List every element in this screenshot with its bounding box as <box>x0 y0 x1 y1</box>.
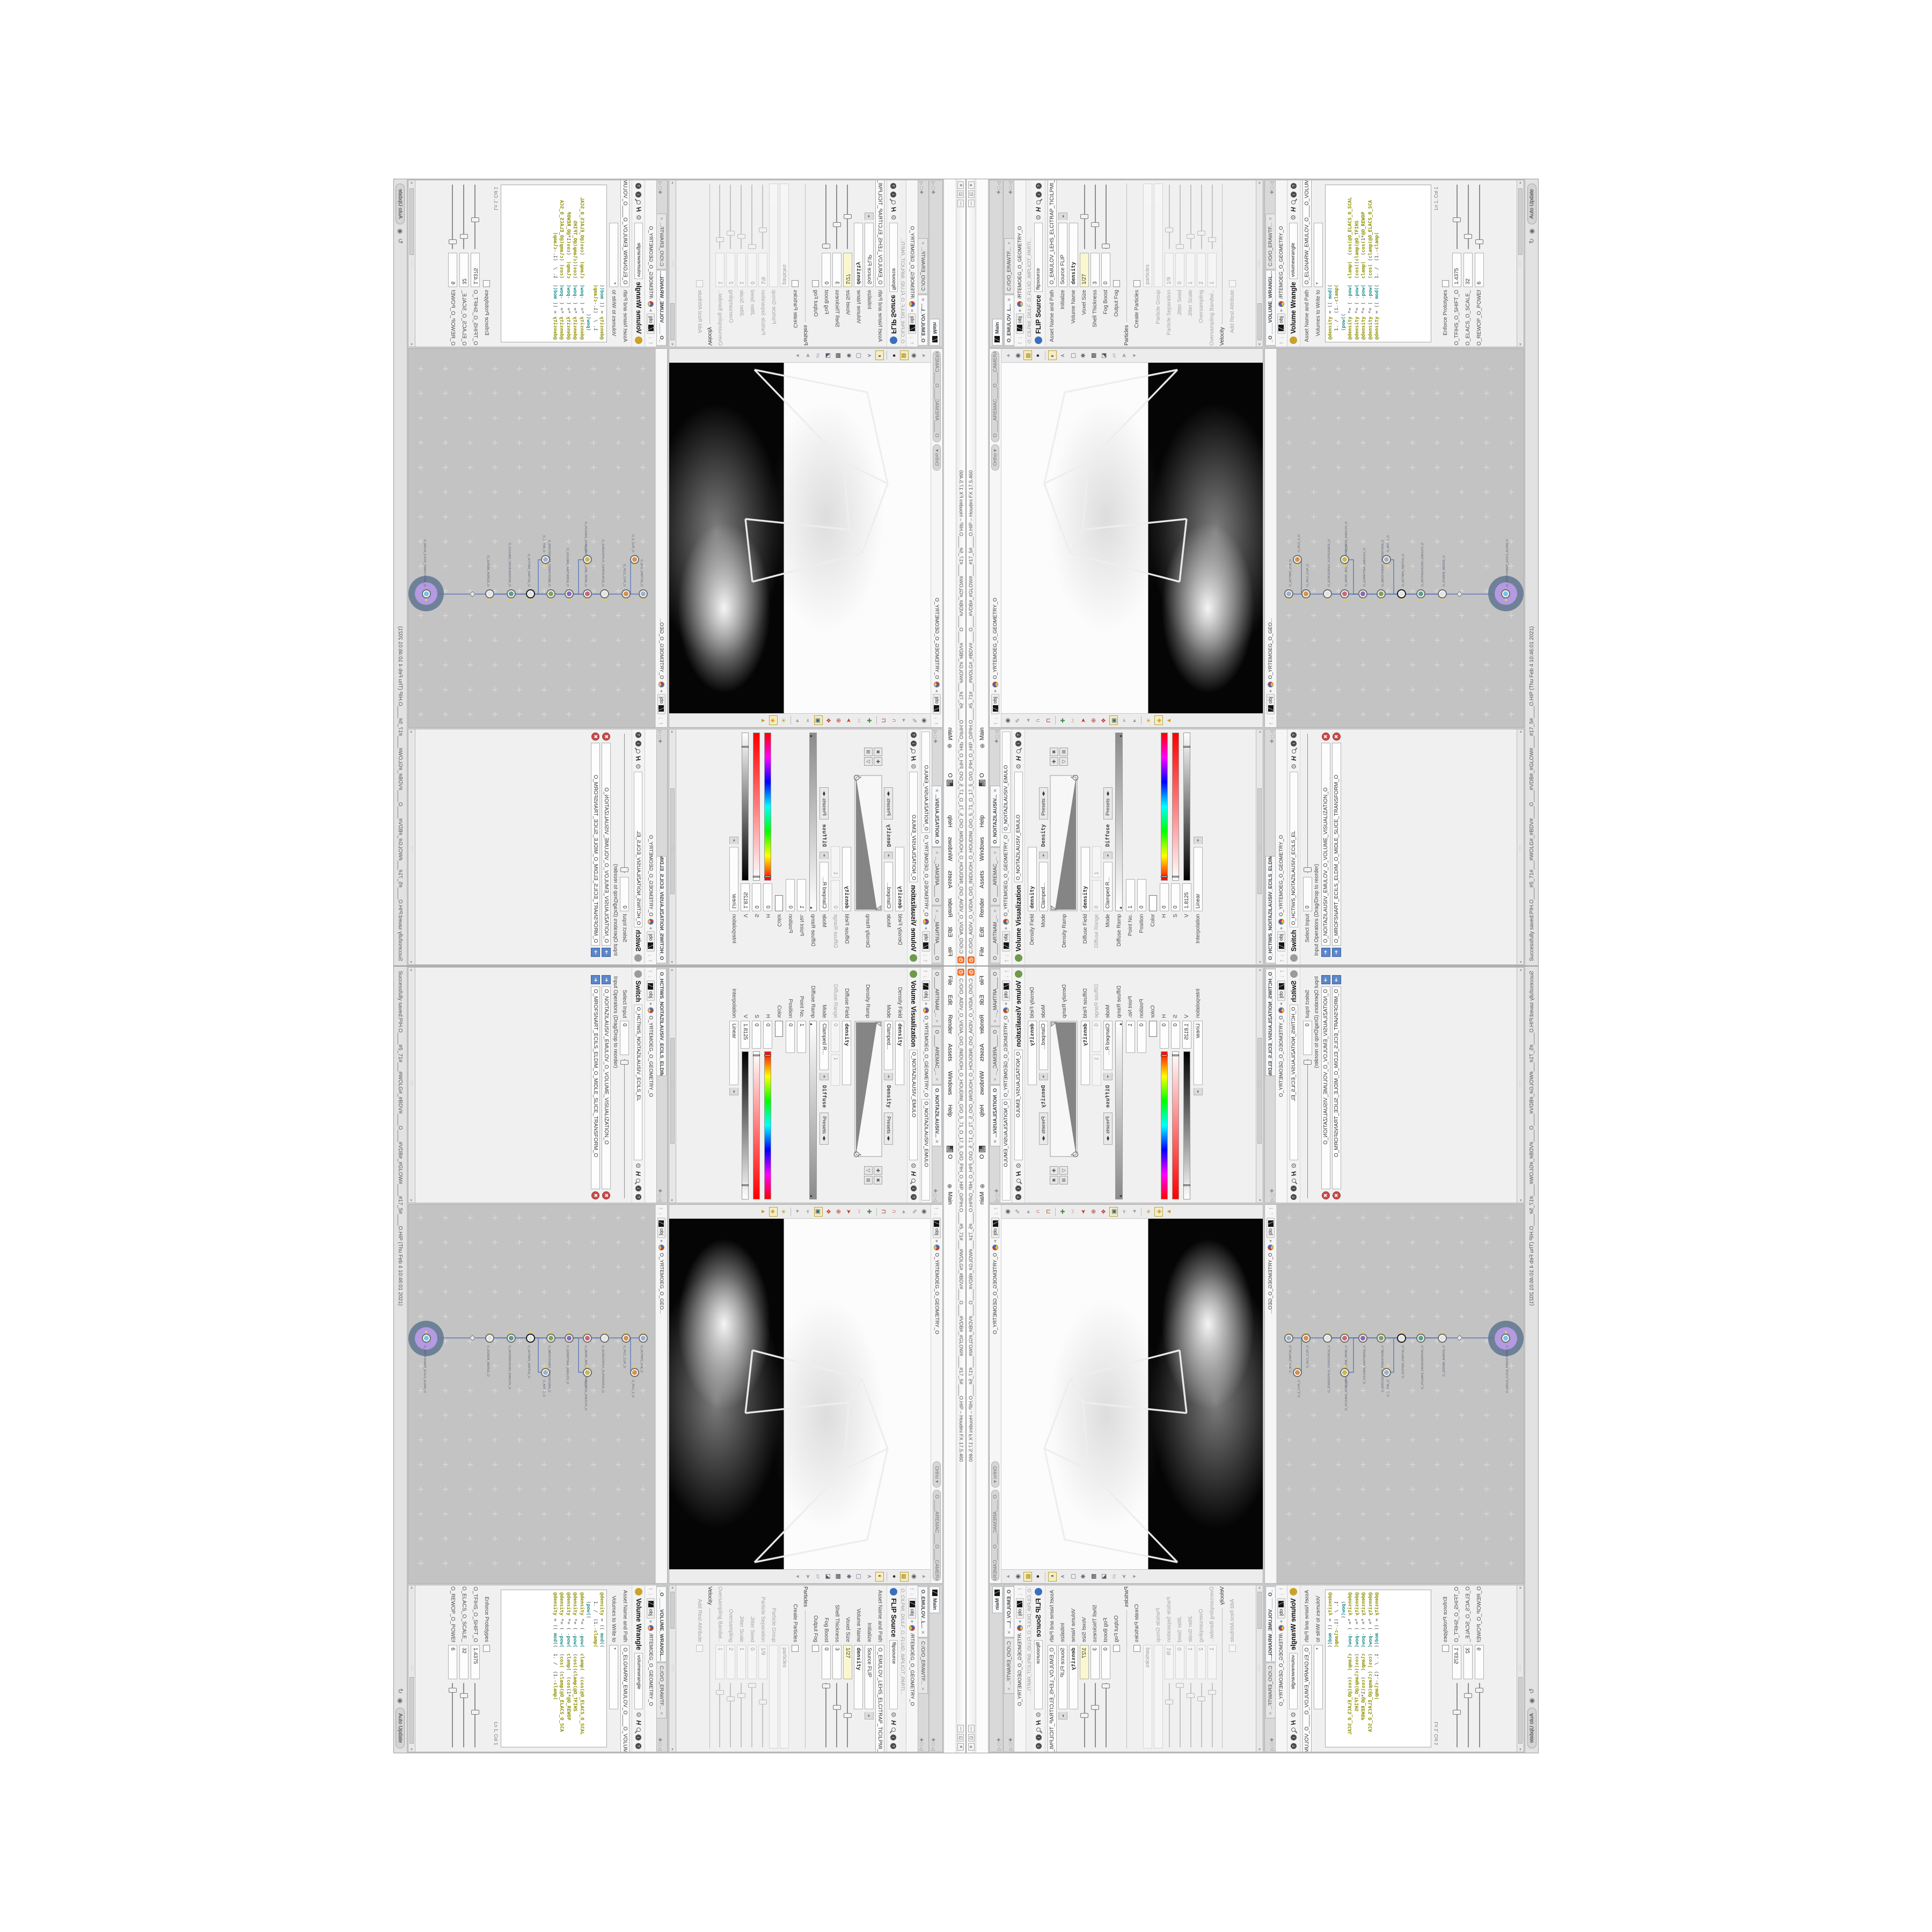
param-field[interactable]: density <box>1028 847 1037 911</box>
param-slider[interactable] <box>1304 733 1312 874</box>
wire-box-icon[interactable]: ▢ <box>1069 351 1077 361</box>
reorder-arrow-button[interactable]: ➔ <box>1332 948 1341 957</box>
view-tool-icon[interactable]: ◉ <box>1003 716 1012 726</box>
menu-assets[interactable]: Assets <box>978 866 986 893</box>
scene-viewport-pane: ↑ ↓ obj ▸ O_YRTEMOEG_O_GEOMETRY_O Ortho … <box>989 348 1263 728</box>
wrangle-node-icon <box>1290 336 1297 344</box>
network-node-label: O_EZIRETSAR_EMULOV_O <box>1363 548 1366 587</box>
window-titlebar: C:/O/O_AIDIV_O_VIDIA_O/O_INIDUOH_O_HOUDI… <box>967 179 976 965</box>
param-checkbox[interactable] <box>1229 280 1236 287</box>
param-slider[interactable] <box>1208 184 1216 250</box>
param-slider[interactable] <box>1176 184 1184 250</box>
crumb-arrow-icon: ▸ <box>1268 690 1274 692</box>
crumb-arrow-icon: ▸ <box>1278 927 1284 930</box>
ramp-buttons: ✚✖▽⊞ <box>1050 748 1079 766</box>
menu-windows[interactable]: Windows <box>978 832 986 866</box>
crumb-path[interactable]: O_YRTEMOEG_O_GEOMETRY_O <box>992 598 998 679</box>
cook-mode-selector[interactable]: Auto Update <box>1527 184 1536 224</box>
houdini-help-icon[interactable]: H <box>1290 207 1297 212</box>
pane-control-icon[interactable]: □ <box>994 735 1000 738</box>
param-label: Voxel Size <box>1081 290 1087 346</box>
network-node[interactable] <box>1301 589 1311 598</box>
param-row: H0 <box>1159 733 1169 963</box>
pane-tab[interactable]: C:/O/O_ERAWTF...✕ <box>1004 238 1014 294</box>
help-icon[interactable]: ? <box>1015 732 1021 738</box>
pane-tab[interactable]: O_NOITAZILAUSIV...✕ <box>990 786 1000 847</box>
scroll-up-icon[interactable]: ▴ <box>1003 351 1012 361</box>
pane-scrollbar[interactable]: ◂∷∷▸ <box>1256 729 1263 964</box>
param-slider[interactable] <box>1453 184 1461 250</box>
network-root-chip[interactable]: obj <box>1002 931 1010 952</box>
param-row: Oversampling2 <box>1197 184 1206 346</box>
presets-button[interactable]: Presets◂▸ <box>1103 787 1113 819</box>
param-slider[interactable] <box>1197 184 1205 250</box>
desktop-selector[interactable]: O <box>979 773 985 778</box>
viewport-right-toolbar: ▴◉▦●◐ᴀ▢✱▩◪▱➤▾ <box>1001 349 1263 363</box>
toolbar-separator <box>1141 716 1141 725</box>
pane-tab-label: O ____ARTNAM_... <box>992 915 998 960</box>
param-slider[interactable] <box>1475 184 1483 250</box>
param-label: Jitter Seed <box>1177 290 1183 346</box>
quadview-icon[interactable]: ▦ <box>1023 351 1032 361</box>
param-field[interactable]: 2 <box>1197 253 1206 287</box>
network-node-label: O_MROFSNART_ECILS_ELDIM_O <box>1506 539 1509 587</box>
gear-icon[interactable]: ⚙ <box>1015 764 1022 770</box>
take-gear-icon: ⊕ <box>979 742 986 749</box>
reorder-arrow-button[interactable]: ➔ <box>1321 948 1330 957</box>
network-node-label: O_SNOG_EMULOV_O <box>1345 522 1348 552</box>
pane-control-icon[interactable]: □ <box>1269 186 1275 189</box>
history-back-icon[interactable]: ↑ <box>1016 341 1023 345</box>
param-field[interactable]: Source FLIP <box>1058 223 1067 287</box>
take-selector[interactable]: Main <box>979 728 985 741</box>
pane-control-icon[interactable]: ✚ <box>994 739 1000 743</box>
rotate-tool-icon[interactable]: ⊕ <box>1089 716 1097 726</box>
camera-selector[interactable]: O ____AREMAC____O____CAMERA____O ▾ <box>991 351 999 442</box>
network-node[interactable] <box>1438 589 1447 598</box>
param-field[interactable]: O_ELGNARW_EMULOV_O____O_VOLUME_WRANGLE_O <box>1302 180 1312 287</box>
hsv-s-bar[interactable] <box>1172 733 1179 881</box>
fan-display-icon[interactable]: ✱ <box>1079 351 1087 361</box>
density-ramp-widget[interactable]: ✚✖▽⊞ <box>1050 733 1079 911</box>
param-label: Diffuse Ramp <box>1116 914 1122 963</box>
pane-tab[interactable]: C:/O/O_ERAWTF...✕ <box>1265 214 1275 269</box>
param-field[interactable]: Linear <box>1194 847 1203 911</box>
tab-close-icon[interactable]: ✕ <box>1007 241 1012 245</box>
crumb-path[interactable]: O_YRTEMOEG_O_GEO... <box>1268 618 1274 679</box>
pane-tab[interactable]: O ____ARTNAM_...✕ <box>990 906 1000 963</box>
param-field[interactable]: Clamped R... <box>1103 862 1113 911</box>
param-label: Add Rest Attribute <box>1230 290 1235 346</box>
hook-display-icon[interactable]: ◪ <box>1099 351 1108 361</box>
snap-grid-icon[interactable]: ⊓ <box>1044 716 1052 726</box>
network-node-label: O_NOITAZILAUSIV_EMULOV_O <box>1421 543 1424 587</box>
param-row: particles <box>1143 184 1153 346</box>
history-fwd-icon[interactable]: ↓ <box>1267 716 1275 720</box>
pane-controls[interactable]: ✚□◁ <box>1269 730 1275 743</box>
snap-view-icon[interactable]: ➤ <box>1119 351 1128 361</box>
ramp-flip-button[interactable]: ▽ <box>1059 757 1068 766</box>
param-label: Density Field <box>1029 914 1035 963</box>
param-field[interactable]: O_EMULOV_LEHS_ELCITRAP_TICILPMI_DIULF_O_… <box>1048 180 1057 287</box>
crumb-arrow-icon: ▸ <box>1017 309 1023 312</box>
search-icon[interactable] <box>1016 749 1021 753</box>
history-fwd-icon[interactable]: ↓ <box>992 716 999 720</box>
history-back-icon[interactable]: ↑ <box>1277 341 1285 345</box>
ortho-selector[interactable]: Ortho ▾ <box>991 444 999 471</box>
help-icon[interactable]: ? <box>1291 732 1297 738</box>
remove-item-button[interactable]: ✖ <box>1322 733 1330 741</box>
pose-tool-icon[interactable]: ✂ <box>1069 716 1077 726</box>
tab-close-icon[interactable]: ✕ <box>1268 217 1273 221</box>
param-row: ModeClamped R...◂▸DiffusePresets◂▸ <box>1103 733 1113 963</box>
param-field[interactable]: 0 <box>1101 253 1110 287</box>
gear-icon[interactable]: ⚙ <box>1035 215 1042 221</box>
param-row: S0 <box>1170 733 1180 963</box>
color-swatch[interactable] <box>1149 895 1157 911</box>
tab-close-icon[interactable]: ✕ <box>993 789 998 793</box>
network-node[interactable] <box>1501 589 1510 598</box>
volviz-node-icon <box>1015 954 1022 962</box>
network-graph[interactable]: O_HCTIWS_VDB_OO_PILC_CLIP_OO_PILC_2_OO_E… <box>1277 349 1524 727</box>
pane-title: FLIP Source <box>1035 295 1042 334</box>
code-cursor-status: Ln 1, Col 1 <box>1433 184 1439 346</box>
menu-help[interactable]: Help <box>978 810 986 832</box>
prev-tools-icon[interactable]: ◂ <box>1023 716 1032 726</box>
param-field[interactable]: 1/27 <box>1080 253 1089 287</box>
dropdown-cap-icon[interactable]: ◂▸ <box>1058 213 1067 220</box>
crumb-path[interactable]: O_YRTEMOEG_O_GEOMETRY_O <box>1003 835 1009 917</box>
param-field[interactable]: 6 <box>1475 253 1484 287</box>
hsv-h-bar[interactable] <box>1161 733 1168 881</box>
param-label: Initialize <box>1060 290 1066 346</box>
history-back-icon[interactable]: ↑ <box>1278 959 1285 962</box>
network-node[interactable] <box>1358 589 1367 598</box>
network-root-chip[interactable]: obj <box>991 694 999 714</box>
info-icon[interactable]: i <box>1291 192 1297 197</box>
param-row: Create Particles <box>1132 184 1142 346</box>
param-label: Diffuse Field <box>1082 914 1088 963</box>
param-row: Oversampling Bandwi...1 <box>1207 184 1217 346</box>
pane-control-icon[interactable]: ✚ <box>1008 190 1014 194</box>
shaded-mode-icon[interactable]: ◐ <box>1048 351 1057 361</box>
param-row: Color <box>1148 733 1158 963</box>
pane-controls[interactable]: ✚□◁ <box>996 181 1002 194</box>
param-field[interactable]: 0 <box>1160 883 1169 911</box>
persp-eye-icon[interactable]: ◉ <box>1013 351 1022 361</box>
param-slider[interactable] <box>1165 184 1173 250</box>
dropdown-cap-icon[interactable]: ◂▸ <box>1039 852 1048 859</box>
param-label: Density Ramp <box>1062 914 1067 963</box>
dropdown-cap-icon[interactable]: ◂▸ <box>1103 852 1113 859</box>
houdini-help-icon[interactable]: H <box>1015 756 1022 761</box>
param-slider[interactable] <box>1102 184 1110 250</box>
recook-icon[interactable]: ↻ <box>1528 238 1535 244</box>
param-row: Shell Thickness3 <box>1091 184 1100 346</box>
close-button[interactable]: ✕ <box>968 181 975 189</box>
network-node[interactable] <box>1382 555 1391 564</box>
info-icon[interactable]: i <box>1015 741 1021 747</box>
param-row: InitializeSource FLIP◂▸ <box>1058 184 1068 346</box>
param-field[interactable]: Clamped... <box>1039 862 1048 911</box>
snapshot-tool-icon[interactable]: ✎ <box>1013 716 1022 726</box>
param-row: Density Fielddensity <box>1027 733 1037 963</box>
param-slider[interactable] <box>1080 184 1088 250</box>
crumb-path[interactable]: O_YRTEMOEG_O_GEOMETRY_O <box>1278 835 1284 917</box>
pane-controls[interactable]: ✚□◁ <box>994 730 1000 743</box>
houdini-logo-icon <box>968 956 975 963</box>
gear-icon[interactable]: ⚙ <box>1290 215 1297 221</box>
node-name-field[interactable]: flipsource <box>1034 223 1043 292</box>
network-root-chip[interactable]: obj <box>1277 931 1285 952</box>
tab-close-icon[interactable]: ✕ <box>993 909 998 913</box>
param-row: Diffuse Range01 <box>1092 733 1101 963</box>
info-icon[interactable]: i <box>1036 192 1042 197</box>
search-icon[interactable] <box>1292 749 1296 753</box>
snap-magnet-icon[interactable]: ∩ <box>1034 716 1042 726</box>
pane-control-icon[interactable]: ✚ <box>1269 739 1275 743</box>
tab-close-icon[interactable]: ✕ <box>1007 298 1012 302</box>
text-overlay-icon[interactable]: ᴀ <box>1058 351 1067 361</box>
vex-snippet-editor[interactable]: @density = (( mod(( 1. / (1.-clamp( (pow… <box>1325 185 1431 342</box>
toolbar-separator <box>1055 716 1056 725</box>
remove-item-button[interactable]: ✖ <box>1333 733 1341 741</box>
node-name-field[interactable]: O_NOITAZILAUSIV_EMULO <box>1014 772 1023 882</box>
param-field[interactable]: 1.4375 <box>1452 253 1461 287</box>
network-root-chip[interactable]: obj <box>1267 694 1275 714</box>
network-root-chip[interactable]: obj <box>1016 313 1024 334</box>
param-checkbox[interactable] <box>1442 280 1449 287</box>
info-icon[interactable]: i <box>1291 741 1297 747</box>
param-field[interactable]: 0 <box>1092 880 1101 911</box>
pane-control-icon[interactable]: ◁ <box>1269 730 1275 734</box>
history-back-icon[interactable]: ↑ <box>1002 959 1010 962</box>
param-field[interactable]: 3 <box>1091 253 1100 287</box>
menu-edit[interactable]: Edit <box>978 922 986 942</box>
param-slider[interactable] <box>1091 184 1099 250</box>
pane-controls[interactable]: ✚□◁ <box>1008 181 1014 194</box>
network-node[interactable] <box>1293 555 1302 564</box>
param-label: Diffuse Range <box>1094 914 1100 963</box>
operator-path-field[interactable]: O_NOITAZILAUSIV_EMULOV_O_VOLUME_VISUALIZ… <box>1321 743 1330 946</box>
light-headlight-icon[interactable]: ☀ <box>1144 716 1153 726</box>
shade-dark-icon[interactable]: ● <box>1034 351 1042 361</box>
param-row: Enforce Prototypes <box>1441 184 1451 346</box>
minimize-button[interactable]: ― <box>968 200 975 207</box>
param-field[interactable]: 1 <box>1126 879 1135 911</box>
param-row: O_ELACS_O_SCALE_O32 <box>1463 184 1473 346</box>
param-field[interactable]: 0 <box>1175 253 1184 287</box>
help-icon[interactable]: ? <box>1036 183 1042 189</box>
param-checkbox[interactable] <box>1133 280 1140 287</box>
pane-tab[interactable]: O_EMULOV_L...✕ <box>1004 295 1014 346</box>
history-fwd-icon[interactable]: ↓ <box>1016 336 1023 339</box>
network-node[interactable] <box>1416 589 1425 598</box>
network-node-label: O_ART_2_O <box>1387 535 1390 552</box>
search-icon[interactable] <box>1291 200 1296 204</box>
ramp-add-point-button[interactable]: ✚ <box>1050 757 1058 766</box>
param-field[interactable]: 0 <box>1171 883 1180 911</box>
light-env-icon[interactable]: ◈ <box>1154 716 1163 726</box>
pane-tab-label: O ____AREMAC_... <box>992 857 998 902</box>
param-row: Voxel Size1/27 <box>1080 184 1089 346</box>
section-separator: Particles <box>1123 184 1131 346</box>
viewport-render[interactable] <box>1001 363 1263 713</box>
network-node[interactable] <box>1323 589 1332 598</box>
network-root-chip[interactable]: obj <box>1277 313 1285 334</box>
dropdown-cap-icon[interactable]: ◂▸ <box>1194 837 1203 844</box>
ramp-del-point-button[interactable]: ✖ <box>1050 748 1058 756</box>
desktop-layout-icon <box>979 780 985 786</box>
toolbar-separator <box>1045 352 1045 360</box>
pane-scrollbar[interactable]: ◂∷∷▸ <box>1517 180 1524 347</box>
network-node[interactable] <box>1284 589 1293 598</box>
param-checkbox[interactable] <box>1113 280 1120 287</box>
section-label: Particles <box>1124 325 1130 346</box>
param-field[interactable]: 0 <box>1303 877 1312 911</box>
geometry-node-icon <box>1268 682 1274 687</box>
network-node[interactable] <box>1377 589 1386 598</box>
gear-icon[interactable]: ⚙ <box>1290 764 1298 770</box>
scale-tool-icon[interactable]: ❖ <box>1099 716 1108 726</box>
scroll-dn-icon[interactable]: ▾ <box>1130 351 1138 361</box>
search-icon[interactable] <box>1036 200 1041 204</box>
param-field[interactable]: 32 <box>1463 253 1473 287</box>
next-tools-icon[interactable]: ▸ <box>1130 716 1138 726</box>
tab-close-icon[interactable]: ✕ <box>993 851 998 854</box>
param-field[interactable]: density <box>1069 223 1078 287</box>
param-field[interactable]: 0 <box>1137 879 1146 911</box>
pane-tab[interactable]: O ____AREMAC_...✕ <box>990 847 1000 905</box>
cursor-icon[interactable]: ➢ <box>1119 716 1128 726</box>
light-cone-icon[interactable]: ▲ <box>1165 716 1173 726</box>
param-field[interactable] <box>1154 184 1163 287</box>
param-label: Color <box>1150 914 1156 963</box>
pane-control-icon[interactable]: ◁ <box>1008 181 1014 185</box>
param-field[interactable]: 1/9 <box>1165 253 1174 287</box>
param-field[interactable]: 1 <box>1092 846 1101 877</box>
translate-tool-icon[interactable]: ➤ <box>1079 716 1087 726</box>
presets-button[interactable]: Presets◂▸ <box>1039 787 1048 819</box>
param-label: Asset Name and Path <box>1304 290 1310 346</box>
prism-display-icon[interactable]: ▱ <box>1109 351 1118 361</box>
param-label: Jitter Scale <box>1188 290 1194 346</box>
param-row: Add Rest Attribute <box>1228 184 1238 346</box>
crumb-path[interactable]: /RTEMOEG_O_GEOMETRY_O <box>1278 226 1284 298</box>
diffuse-ramp-widget[interactable]: ▲▲ <box>1115 733 1123 911</box>
history-fwd-icon[interactable]: ↓ <box>1277 336 1285 339</box>
houdini-help-icon[interactable]: H <box>1035 207 1042 212</box>
section-label: Velocity <box>1219 327 1225 346</box>
param-label: Point No. <box>1128 914 1133 963</box>
geometry-node-icon <box>1278 301 1284 307</box>
node-name-field[interactable]: O_HCTIWS_NOITAZILAUSIV_ECILS_EL <box>1290 772 1298 927</box>
param-field[interactable]: 1 <box>1207 253 1217 287</box>
param-field[interactable]: density <box>1081 847 1090 911</box>
switch-pane: O_HCTIWS_NOITAZILAUSIV_ECILS_ELDIM_O_MID… <box>1264 729 1524 965</box>
axis-jack-icon[interactable]: ✚ <box>1058 716 1067 726</box>
pane-controls[interactable]: ✚□◁ <box>1269 181 1275 194</box>
geometry-node-icon <box>992 682 998 687</box>
pane-scrollbar[interactable]: ◂∷∷▸ <box>1256 180 1263 347</box>
param-label: S <box>1173 914 1179 963</box>
param-row: Jitter Seed0 <box>1175 184 1185 346</box>
param-row: Point No.1 <box>1125 733 1135 963</box>
history-fwd-icon[interactable]: ↓ <box>1278 954 1285 957</box>
param-label: O_ELACS_O_SCALE_O <box>1465 290 1471 346</box>
asset-hint-label: O_CILPMI_DIULF_O_FLUID_IMPLICIT_PARTI... <box>1026 180 1033 347</box>
ramp-expand-button[interactable]: ⊞ <box>1059 748 1068 756</box>
pane-control-icon[interactable]: ✚ <box>1269 190 1275 194</box>
menu-render[interactable]: Render <box>978 893 986 922</box>
clapper-icon <box>1017 325 1022 331</box>
param-label: Mode <box>1105 914 1111 963</box>
crumb-path[interactable]: /RTEMOEG_O_GEOMETRY_O <box>1017 226 1023 298</box>
network-node-label: O_PILC_2_O <box>1298 535 1301 552</box>
param-label: Fog Boost <box>1103 290 1109 346</box>
node-path-field[interactable]: O_NOITAZILAUSIV_EMULO <box>1002 731 1011 833</box>
td-mode-icon[interactable]: ▣ <box>1109 716 1118 726</box>
network-node[interactable] <box>1340 589 1349 598</box>
param-row: O_TFIHS_O_SHIFT_O1.4375 <box>1452 184 1462 346</box>
history-fwd-icon[interactable]: ↓ <box>1002 954 1010 957</box>
pane-tab[interactable]: O_HCTIWS_NOITAZILAUSIV_ECILS_ELDIM_O_MID… <box>1265 856 1275 963</box>
pane-scrollbar[interactable]: ◂∷∷▸ <box>1517 729 1524 964</box>
dropdown-cap-icon: ◂▸ <box>1041 791 1046 796</box>
pane-control-icon[interactable]: ◁ <box>994 730 1000 734</box>
history-back-icon[interactable]: ↑ <box>1267 722 1275 725</box>
clapper-icon <box>993 705 998 712</box>
param-row: Fog Boost0 <box>1101 184 1111 346</box>
operator-path-field[interactable]: O_MROFSNART_ECILS_ELDIM_O_MIDLE_SLICE_TR… <box>1332 743 1341 946</box>
param-row: Asset Name and PathO_EMULOV_LEHS_ELCITRA… <box>1048 184 1057 346</box>
pane-tab[interactable]: _O ____VOLUME_WRANGL...✕ <box>1265 270 1275 346</box>
history-back-icon[interactable]: ↑ <box>992 722 999 725</box>
param-label: Particle Separation <box>1166 290 1172 346</box>
pane-control-icon[interactable]: □ <box>1008 186 1013 189</box>
quadrant-top-right: C:/O/O_AIDIV_O_VIDIA_O/O_INIDUOH_O_HOUDI… <box>0 0 1932 1932</box>
pane-control-icon[interactable]: ◁ <box>1269 181 1275 185</box>
hsv-v-bar[interactable] <box>1183 733 1190 881</box>
volume-visualization-pane: O ____ARTNAM_...✕O ____AREMAC_...✕O_NOIT… <box>989 729 1263 965</box>
handles-box-icon[interactable]: ▩ <box>1089 351 1097 361</box>
pane-control-icon[interactable]: □ <box>1270 735 1275 738</box>
param-field[interactable]: particles <box>1143 184 1152 287</box>
param-slider[interactable] <box>1464 184 1472 250</box>
param-row: Density Ramp✚✖▽⊞ <box>1050 733 1079 963</box>
network-node-label: O_PILC_CLIP_O <box>1306 564 1309 587</box>
take-list-tab[interactable]: Main <box>992 319 1002 346</box>
houdini-help-icon[interactable]: H <box>1290 756 1298 761</box>
param-slider[interactable] <box>1187 184 1195 250</box>
network-editor-pane: ↑ ↓ obj ▸ O_YRTEMOEG_O_GEO... O_HCTIWS_V… <box>1264 348 1524 728</box>
pane-tab-label: O_HCTIWS_NOITAZILAUSIV_ECILS_ELDIM_O_MID… <box>1268 856 1274 960</box>
clapper-icon <box>1268 705 1274 712</box>
menu-file[interactable]: File <box>978 942 986 961</box>
param-field[interactable]: 1.8125 <box>1182 883 1191 911</box>
network-node[interactable] <box>1397 589 1406 598</box>
param-label: Volume Name <box>1071 290 1077 346</box>
node-name-field[interactable]: volumewrangle <box>1289 223 1298 279</box>
restore-button[interactable]: ◱ <box>968 191 975 198</box>
clapper-icon <box>994 336 1000 342</box>
network-node-label: O_ECRUOSPILF_FLIPSOURCE_O <box>1328 539 1331 587</box>
param-row: Jitter Scale1 <box>1186 184 1196 346</box>
param-field[interactable]: 1 <box>1186 253 1195 287</box>
help-icon[interactable]: ? <box>1291 183 1297 189</box>
network-node[interactable] <box>1340 555 1349 564</box>
param-field[interactable]: * <box>1314 223 1323 287</box>
